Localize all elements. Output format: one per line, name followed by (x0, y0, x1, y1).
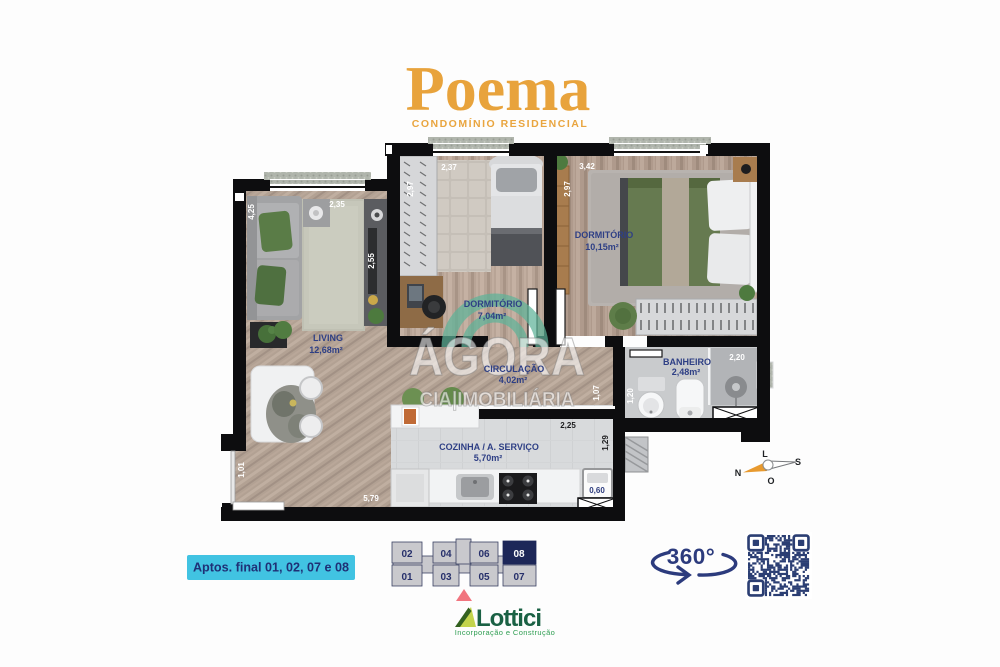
svg-text:LIVING: LIVING (313, 333, 343, 343)
svg-text:CONDOMÍNIO RESIDENCIAL: CONDOMÍNIO RESIDENCIAL (412, 117, 589, 130)
svg-text:03: 03 (440, 572, 452, 583)
svg-text:O: O (767, 476, 774, 486)
svg-text:4,25: 4,25 (247, 204, 256, 220)
svg-text:04: 04 (440, 549, 452, 560)
svg-text:5,70m²: 5,70m² (474, 453, 503, 463)
svg-text:2,37: 2,37 (441, 163, 457, 172)
svg-text:COZINHA / A. SERVIÇO: COZINHA / A. SERVIÇO (439, 442, 539, 452)
svg-text:07: 07 (513, 572, 525, 583)
svg-text:2,97: 2,97 (563, 181, 572, 197)
svg-text:2,35: 2,35 (329, 200, 345, 209)
svg-text:CIRCULAÇÃO: CIRCULAÇÃO (484, 364, 545, 374)
svg-text:06: 06 (478, 549, 490, 560)
svg-text:08: 08 (513, 549, 525, 560)
svg-text:DORMITÓRIO: DORMITÓRIO (575, 229, 634, 240)
svg-text:N: N (735, 468, 742, 478)
svg-text:BANHEIRO: BANHEIRO (663, 357, 711, 367)
svg-text:02: 02 (401, 549, 413, 560)
svg-text:7,04m²: 7,04m² (478, 311, 507, 321)
svg-text:1,07: 1,07 (592, 385, 601, 401)
svg-text:S: S (795, 457, 801, 467)
svg-text:01: 01 (401, 572, 413, 583)
svg-text:Aptos. final 01, 02, 07 e 08: Aptos. final 01, 02, 07 e 08 (193, 561, 349, 575)
svg-text:2,97: 2,97 (406, 181, 415, 197)
svg-text:DORMITÓRIO: DORMITÓRIO (464, 298, 523, 309)
svg-text:1,01: 1,01 (237, 462, 246, 478)
svg-text:10,15m²: 10,15m² (585, 242, 619, 252)
svg-text:05: 05 (478, 572, 490, 583)
svg-text:0,60: 0,60 (589, 486, 605, 495)
svg-text:ÁGORA: ÁGORA (409, 327, 585, 387)
svg-text:CIA|IMOBILIÁRIA: CIA|IMOBILIÁRIA (420, 388, 575, 411)
svg-text:L: L (762, 449, 768, 459)
svg-text:Incorporação e Construção: Incorporação e Construção (455, 628, 555, 637)
svg-text:1,29: 1,29 (601, 435, 610, 451)
svg-text:2,48m²: 2,48m² (672, 367, 701, 377)
svg-text:2,20: 2,20 (729, 353, 745, 362)
svg-text:360°: 360° (667, 544, 716, 569)
svg-text:1,20: 1,20 (626, 388, 635, 404)
svg-text:Poema: Poema (406, 53, 591, 124)
svg-text:2,25: 2,25 (560, 421, 576, 430)
svg-text:5,79: 5,79 (363, 494, 379, 503)
svg-text:4,02m²: 4,02m² (499, 375, 528, 385)
svg-text:3,42: 3,42 (579, 162, 595, 171)
svg-text:2,55: 2,55 (367, 253, 376, 269)
svg-text:12,68m²: 12,68m² (309, 345, 343, 355)
